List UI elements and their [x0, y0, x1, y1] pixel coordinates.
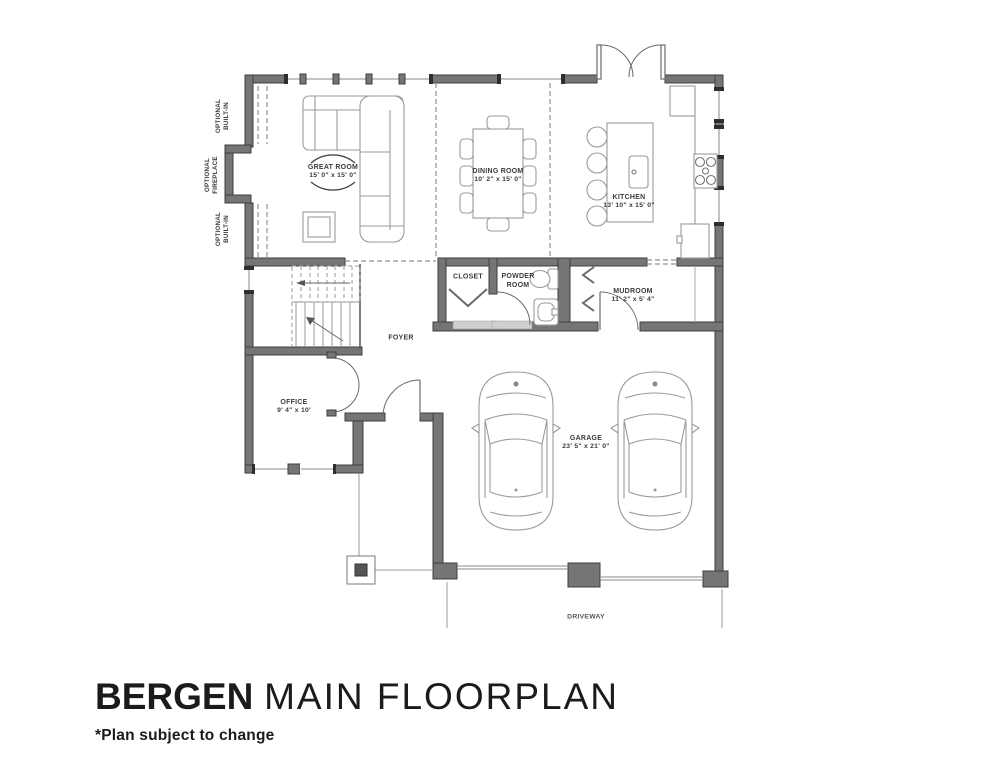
- annotation-line: BUILT-IN: [223, 212, 231, 246]
- fireplace-bottom-wall: [225, 195, 251, 203]
- powder-room-line1: POWDER: [502, 272, 535, 281]
- floorplan-sheet: GREAT ROOM 15' 0" x 15' 0" DINING ROOM 1…: [0, 0, 991, 768]
- fireplace-top-wall: [225, 145, 251, 153]
- office-label: OFFICE 9' 4" x 10': [277, 398, 311, 416]
- optional-fireplace-label: OPTIONAL FIREPLACE: [204, 156, 220, 193]
- garage-door-left: [457, 566, 568, 569]
- dining-room-name: DINING ROOM: [473, 167, 524, 176]
- mudroom-label: MUDROOM 11' 2" x 5' 4": [611, 287, 654, 305]
- dining-chair: [523, 139, 536, 159]
- front-entry-door: [383, 380, 420, 417]
- wall-hall-top-right: [677, 258, 723, 266]
- window-great-room: [284, 74, 433, 84]
- title-block: BERGEN MAIN FLOORPLAN *Plan subject to c…: [95, 676, 619, 745]
- dining-chair: [460, 193, 473, 213]
- dining-room-label: DINING ROOM 10' 2" x 15' 0": [473, 167, 524, 185]
- optional-built-in-bottom-label: OPTIONAL BUILT-IN: [215, 212, 231, 246]
- island-stool: [587, 127, 607, 147]
- kitchen-dims: 13' 10" x 15' 0": [603, 202, 654, 211]
- corner-cabinet: [670, 86, 695, 116]
- plan-subtitle: MAIN FLOORPLAN: [264, 676, 619, 717]
- fireplace-back-wall: [225, 145, 233, 203]
- dining-room-dims: 10' 2" x 15' 0": [473, 176, 524, 185]
- wall-foyer-south-left: [345, 413, 385, 421]
- plan-disclaimer: *Plan subject to change: [95, 727, 619, 745]
- wall-left-lower: [245, 203, 253, 473]
- wall-closet-right: [489, 258, 497, 294]
- refrigerator: [677, 224, 709, 258]
- garage-door-right: [600, 577, 703, 580]
- sink-faucet: [632, 170, 636, 174]
- powder-room-door: [497, 292, 530, 325]
- kitchen-fixtures: [587, 86, 717, 258]
- coat-hooks: [583, 295, 594, 311]
- stair-lower-flight: [292, 302, 360, 347]
- tv-console: [303, 212, 335, 242]
- wall-top-right: [665, 75, 723, 83]
- dining-chair: [523, 193, 536, 213]
- dining-chair: [460, 166, 473, 186]
- kitchen-label: KITCHEN 13' 10" x 15' 0": [603, 193, 654, 211]
- office-name: OFFICE: [277, 398, 311, 407]
- dining-chair: [460, 139, 473, 159]
- closet-bifold-doors: [449, 289, 487, 306]
- dining-chair: [523, 166, 536, 186]
- great-room-label: GREAT ROOM 15' 0" x 15' 0": [308, 163, 358, 181]
- annotation-line: FIREPLACE: [212, 156, 220, 193]
- windows-office-bottom: [252, 464, 336, 474]
- great-room-dims: 15' 0" x 15' 0": [308, 172, 358, 181]
- porch-post: [347, 556, 375, 584]
- wall-left-upper: [245, 75, 253, 147]
- garage-corner-post-left: [433, 563, 457, 579]
- wall-office-top: [245, 347, 362, 355]
- garage-name: GARAGE: [562, 434, 609, 443]
- plan-title: BERGEN MAIN FLOORPLAN: [95, 676, 619, 718]
- annotation-line: OPTIONAL: [215, 212, 223, 246]
- garage-corner-post-right: [703, 571, 728, 587]
- powder-room-line2: ROOM: [502, 281, 535, 290]
- closet-threshold: [453, 321, 497, 329]
- window-stair-left: [244, 266, 254, 294]
- wall-hall-top-left: [440, 258, 647, 266]
- garage-label: GARAGE 23' 5" x 21' 0": [562, 434, 609, 452]
- car-right: [611, 372, 699, 530]
- office-dims: 9' 4" x 10': [277, 407, 311, 416]
- plan-name: BERGEN: [95, 676, 253, 717]
- annotation-line: BUILT-IN: [223, 99, 231, 133]
- wall-powder-right: [558, 258, 570, 330]
- wall-office-right: [353, 413, 363, 473]
- wall-garage-top-right: [640, 322, 723, 331]
- driveway-label: DRIVEWAY: [567, 614, 605, 623]
- patio-double-door: [597, 45, 665, 79]
- window-dining: [497, 74, 565, 84]
- garage-dims: 23' 5" x 21' 0": [562, 443, 609, 452]
- office-french-doors: [327, 352, 359, 416]
- powder-threshold: [492, 321, 532, 329]
- range: [694, 154, 717, 188]
- mudroom-name: MUDROOM: [611, 287, 654, 296]
- closet-name: CLOSET: [453, 272, 483, 281]
- kitchen-name: KITCHEN: [603, 193, 654, 202]
- driveway-name: DRIVEWAY: [567, 614, 605, 623]
- coat-hooks: [583, 267, 594, 283]
- great-room-name: GREAT ROOM: [308, 163, 358, 172]
- island-stool: [587, 153, 607, 173]
- dining-chair: [487, 116, 509, 129]
- car-left: [472, 372, 560, 530]
- garage-center-post: [568, 563, 600, 587]
- powder-room-label: POWDER ROOM: [502, 272, 535, 290]
- wall-closet-left: [438, 258, 446, 327]
- annotation-line: OPTIONAL: [215, 99, 223, 133]
- mudroom-dims: 11' 2" x 5' 4": [611, 296, 654, 305]
- closet-label: CLOSET: [453, 272, 483, 281]
- bathroom-sink: [534, 299, 558, 325]
- annotation-line: OPTIONAL: [204, 156, 212, 193]
- staircase: [292, 264, 360, 349]
- dining-chair: [487, 218, 509, 231]
- foyer-name: FOYER: [388, 333, 413, 342]
- foyer-label: FOYER: [388, 333, 413, 342]
- optional-built-in-top-label: OPTIONAL BUILT-IN: [215, 99, 231, 133]
- floorplan-drawing: [0, 0, 991, 768]
- wall-stair-top: [245, 258, 345, 266]
- wall-garage-left: [433, 413, 443, 577]
